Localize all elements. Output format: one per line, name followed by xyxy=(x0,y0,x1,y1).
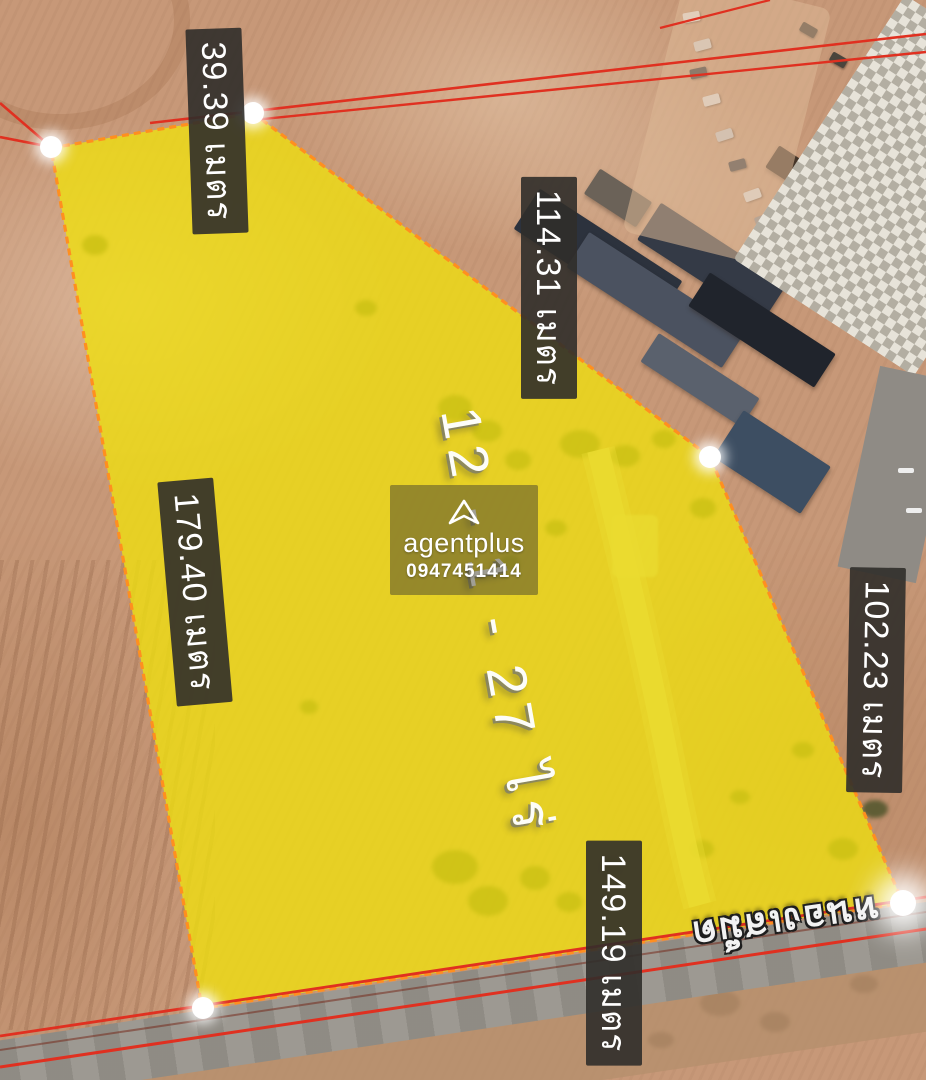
survey-red-line xyxy=(660,0,770,28)
measurement-label-bottom: 149.19 เมตร xyxy=(586,841,642,1066)
watermark-phone: 0947451414 xyxy=(406,561,522,583)
agentplus-logo-triangle-icon xyxy=(446,498,482,526)
survey-red-line xyxy=(150,34,926,123)
vertex-dot-se xyxy=(890,890,916,916)
measurement-label-right: 102.23 เมตร xyxy=(846,567,906,793)
measurement-label-top-left: 39.39 เมตร xyxy=(185,28,248,235)
vertex-dot-nw xyxy=(40,136,62,158)
vertex-dot-n xyxy=(242,102,264,124)
measurement-label-upper-right: 114.31 เมตร xyxy=(521,177,577,399)
satellite-land-listing-image: หนองเสม็ด 39.39 เมตร 114.31 เมตร 179.40 … xyxy=(0,0,926,1080)
survey-red-line xyxy=(253,52,926,120)
watermark-box: agentplus 0947451414 xyxy=(390,485,538,595)
watermark-brand: agentplus xyxy=(403,528,525,559)
vertex-dot-e xyxy=(699,446,721,468)
vertex-dot-sw xyxy=(192,997,214,1019)
